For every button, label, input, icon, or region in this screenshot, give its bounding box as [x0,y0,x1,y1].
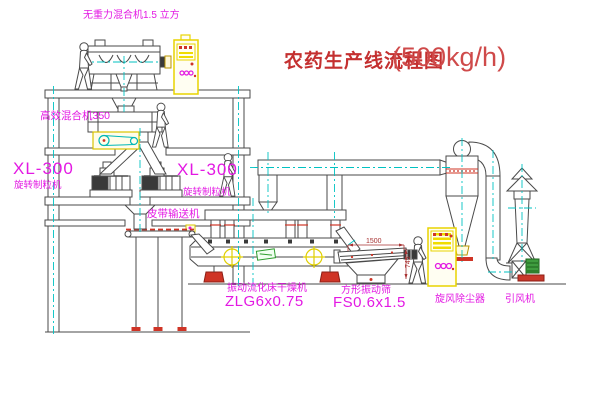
duct-elbow-bottom [486,258,510,280]
label-cyclone: 旋风除尘器 [435,295,485,305]
label-belt-conveyor: 皮带输送机 [147,209,200,220]
label-granulator-left-name: 旋转制粒机 [14,181,62,191]
control-cabinet-lower [428,228,456,286]
induced-draft-fan [512,259,544,281]
label-sieve-model: FS0.6x1.5 [333,295,406,310]
floor-slab-3a [45,197,130,205]
floor-slab-4a [45,220,125,226]
label-high-efficiency-mixer: 高效混合机350 [40,111,110,122]
label-granulator-left-model: XL-300 [13,160,74,177]
floor-slab-3b [150,197,250,205]
control-cabinet-upper [174,35,198,94]
label-fan: 引风机 [505,295,535,305]
high-efficiency-mixer [88,98,162,149]
floor-slab-2b [166,148,250,155]
gravity-free-mixer [81,40,171,91]
nameplate [256,249,275,260]
label-dryer-model: ZLG6x0.75 [225,294,304,309]
label-granulator-right-name: 旋转制粒机 [183,188,231,198]
dim-sieve-length: 1500 [366,238,382,245]
dryer-stubs [210,220,341,238]
page-title-capacity: (500kg/h) [392,44,506,71]
belt-conveyor [125,225,214,331]
fan-base [518,275,544,281]
dryer-foot [204,272,224,282]
fluid-bed-dryer [190,210,356,282]
floor-slab-4b [152,220,250,226]
label-granulator-right-model: XL-300 [177,161,238,178]
dim-sieve-height: 745 [405,256,412,268]
label-gravity-free-mixer: 无重力混合机1.5 立方 [83,11,180,21]
dryer-cover [205,210,346,220]
belt-drive-housing [93,132,139,149]
flow-diagram-canvas: 1500 745 无重力混合机1.5 立方 农药生产线流程图 (500kg/h)… [0,0,600,403]
dryer-foot [320,272,340,282]
floor-slab-1 [45,90,250,98]
square-vibrating-sieve [334,227,417,283]
